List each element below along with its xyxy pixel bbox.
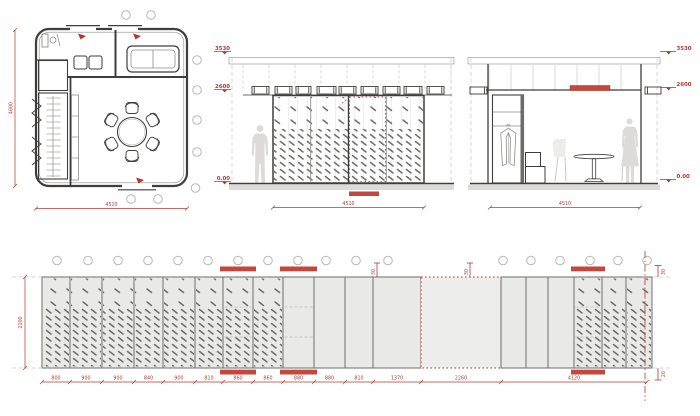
- grid-bubble: [352, 256, 361, 265]
- grid-bubble: [586, 256, 595, 265]
- wardrobe-side-panel: [521, 95, 525, 183]
- glass-panel: [526, 277, 548, 368]
- long-dimensions: 8009009008409008108608608808808101370226…: [40, 376, 649, 385]
- panel-speckle: [103, 279, 133, 309]
- glass-panel: [314, 277, 345, 368]
- level-markers-b: 3530 2600 0.00: [660, 46, 692, 183]
- gap-marker-value: 20: [661, 371, 667, 377]
- door-marker-bar: [220, 370, 256, 375]
- gap-marker-value: 30: [371, 269, 377, 275]
- floor-plan: 4600 4510: [9, 11, 202, 211]
- dimension-value: 810: [204, 376, 213, 382]
- dimension-value: 1370: [391, 376, 403, 382]
- door-opening: [122, 183, 152, 188]
- pedestal-table-base: [585, 179, 603, 182]
- track-light: [317, 87, 336, 95]
- plan-dim-left: 4600: [9, 102, 15, 114]
- dimension-value: 810: [354, 376, 363, 382]
- plan-dim-bottom: 4510: [105, 202, 117, 208]
- human-silhouette: [621, 127, 639, 184]
- panel-speckle: [164, 279, 194, 309]
- human-silhouette: [257, 125, 264, 132]
- panel-speckle: [196, 309, 222, 367]
- roof-band: [468, 58, 660, 65]
- human-silhouette: [252, 134, 268, 184]
- level-label: 3530: [677, 46, 692, 52]
- panel-speckle: [103, 309, 133, 367]
- elevation-front: 3530 2600 0.00 4510: [214, 46, 454, 210]
- round-table: [118, 118, 147, 147]
- ceiling-light-bar: [570, 86, 610, 91]
- grid-bubble: [193, 116, 202, 125]
- door-marker-bar: [571, 267, 605, 272]
- door-marker-bar: [571, 370, 605, 375]
- coat-stand: [50, 37, 56, 43]
- hanger-lines: [47, 98, 61, 176]
- grid-bubble: [384, 256, 393, 265]
- grid-bubble: [147, 11, 156, 20]
- glass-panel: [501, 277, 526, 368]
- grid-bubble: [127, 195, 136, 204]
- grid-bubble: [294, 256, 303, 265]
- grid-bubble: [193, 148, 202, 157]
- dimension-value: 2260: [455, 376, 467, 382]
- human-silhouette: [626, 118, 632, 124]
- floor-band: [229, 185, 454, 191]
- panel-speckle: [224, 309, 252, 367]
- door-direction-arrow: [78, 34, 86, 40]
- grid-bubble: [191, 184, 200, 193]
- grid-bubble: [643, 256, 652, 265]
- pedestal-table-top: [574, 154, 614, 158]
- grid-bubble: [174, 256, 183, 265]
- panel-speckle: [627, 309, 651, 367]
- floor-band: [468, 185, 660, 191]
- wardrobe-elevation: [493, 95, 524, 183]
- dimension-value: 860: [263, 376, 272, 382]
- door-marker-bar: [220, 267, 256, 272]
- dimension-value: 880: [294, 376, 303, 382]
- shelf-strip: [72, 95, 79, 180]
- grid-bubble: [204, 256, 213, 265]
- drawing-canvas: 4600 4510 3530 2600 0.00: [0, 0, 700, 416]
- architectural-drawing-sheet: 4600 4510 3530 2600 0.00: [0, 0, 700, 416]
- door-marker-bar: [280, 370, 317, 375]
- dashed-opening-panel: [421, 277, 501, 368]
- panel-speckle: [71, 279, 101, 309]
- panel-speckle: [575, 309, 601, 367]
- long-grid-bubbles: [53, 256, 652, 265]
- long-dim-left: 2100: [18, 316, 24, 328]
- dimension-value: 840: [144, 376, 153, 382]
- storage-block: [39, 61, 68, 91]
- chair-silhouette: [553, 139, 566, 157]
- elevation-a-dim: 4510: [342, 201, 354, 207]
- grid-bubble: [144, 256, 153, 265]
- roof-band: [229, 58, 454, 65]
- glass-panel: [345, 277, 373, 368]
- panel-speckle: [164, 309, 194, 367]
- panel-speckle: [254, 309, 282, 367]
- grid-bubble: [264, 256, 273, 265]
- grid-bubble: [499, 256, 508, 265]
- dimension-value: 4120: [568, 376, 580, 382]
- grid-bubble: [193, 86, 202, 95]
- plan-inner-wall-line: [39, 32, 184, 183]
- panel-speckle: [254, 279, 282, 309]
- dimension-value: 800: [51, 376, 60, 382]
- door-marker-bar: [280, 267, 317, 272]
- stool: [74, 56, 87, 69]
- gap-marker-value: 30: [464, 269, 470, 275]
- elevation-interior: 3530 2600 0.00 4510: [468, 46, 692, 210]
- grid-bubble: [322, 256, 331, 265]
- glass-panel: [548, 277, 574, 368]
- grid-bubble: [114, 256, 123, 265]
- panel-speckle: [135, 279, 162, 309]
- panel-speckle: [603, 309, 625, 367]
- stool: [89, 56, 102, 69]
- grid-bubble: [614, 256, 623, 265]
- entrance-mat: [349, 192, 379, 197]
- panel-speckle: [43, 279, 69, 309]
- track-lights-a: [252, 87, 444, 95]
- dimension-value: 900: [174, 376, 183, 382]
- panel-speckle: [575, 279, 601, 309]
- level-label: 2600: [677, 82, 692, 88]
- grid-bubble: [122, 11, 131, 20]
- grid-bubble: [527, 256, 536, 265]
- grid-bubble: [53, 256, 62, 265]
- grid-bubble: [556, 256, 565, 265]
- step-cabinet: [526, 167, 546, 184]
- dimension-value: 880: [325, 376, 334, 382]
- long-panel-run: [42, 267, 652, 375]
- round-table-inner: [119, 119, 145, 145]
- dining-chairs: [103, 103, 161, 162]
- grid-bubble: [84, 256, 93, 265]
- panel-speckle: [43, 309, 69, 367]
- gap-marker-value: 30: [661, 269, 667, 275]
- long-elevation: 8009009008409008108608608808808101370226…: [12, 251, 670, 401]
- door-direction-arrow: [133, 34, 141, 40]
- glass-panel: [283, 277, 314, 368]
- panel-speckle: [196, 279, 222, 309]
- plan-outer-wall: [36, 29, 187, 186]
- ceiling-lines: [243, 65, 451, 89]
- umbrella-stand: [57, 34, 60, 46]
- pedestal-table-stem: [592, 159, 595, 179]
- panel-speckle: [224, 279, 252, 309]
- grid-bubble: [193, 56, 202, 65]
- track-light: [404, 87, 422, 95]
- level-markers-a: 3530 2600 0.00: [214, 46, 231, 185]
- dimension-value: 860: [233, 376, 242, 382]
- grid-bubble: [234, 256, 243, 265]
- panel-speckle: [603, 279, 625, 309]
- entry-cabinet: [42, 34, 48, 47]
- dimension-value: 900: [113, 376, 122, 382]
- level-label: 0.00: [677, 174, 691, 180]
- panel-speckle: [71, 309, 101, 367]
- glass-panel: [373, 277, 421, 368]
- step-cabinet: [526, 153, 541, 167]
- door-opening: [70, 27, 96, 32]
- elevation-b-dim: 4510: [559, 201, 571, 207]
- grid-bubble: [154, 195, 163, 204]
- panel-speckle: [135, 309, 162, 367]
- panel-speckle: [627, 279, 651, 309]
- dimension-value: 900: [81, 376, 90, 382]
